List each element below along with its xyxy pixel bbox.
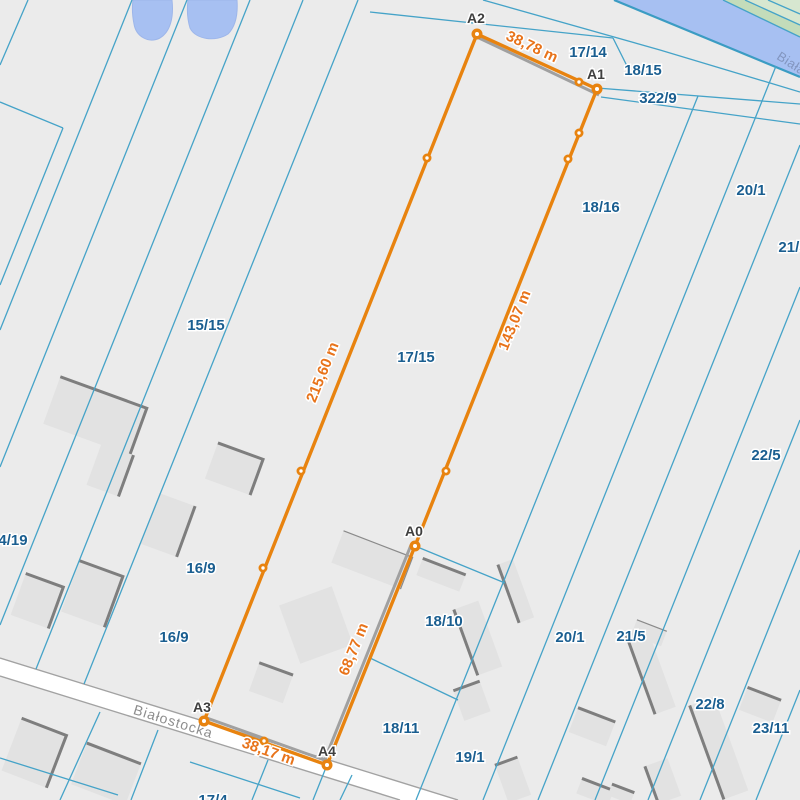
parcel-label-18-15: 18/15 — [624, 62, 662, 79]
vertex-label-a0: A0 — [405, 523, 423, 539]
parcel-label-19-1: 19/1 — [455, 749, 484, 766]
vertex-marker-A0[interactable] — [410, 541, 421, 552]
vertex-label-a1: A1 — [587, 66, 605, 82]
parcel-label-21-5: 21/5 — [778, 239, 800, 256]
parcel-label-18-11: 18/11 — [383, 720, 420, 737]
parcel-label-22-5: 22/5 — [751, 447, 780, 464]
parcel-label-15-15: 15/15 — [187, 317, 225, 334]
parcel-label-322-9: 322/9 — [639, 90, 677, 107]
parcel-label-20-1b: 20/1 — [555, 629, 584, 646]
parcel-label-23-11: 23/11 — [753, 720, 790, 737]
vertex-marker-A3[interactable] — [199, 716, 210, 727]
parcel-label-18-10: 18/10 — [425, 613, 463, 630]
parcel-label-18-16: 18/16 — [582, 199, 620, 216]
vertex-marker-A2[interactable] — [472, 29, 483, 40]
parcel-label-17-15: 17/15 — [397, 349, 435, 366]
parcel-label-16-9a: 16/9 — [186, 560, 215, 577]
parcel-label-20-1: 20/1 — [736, 182, 765, 199]
vertex-label-a2: A2 — [467, 10, 485, 26]
vertex-marker-A1[interactable] — [592, 84, 603, 95]
parcel-label-16-9b: 16/9 — [159, 629, 188, 646]
cadastral-map-canvas[interactable]: Białostocka Biała A0 A1 A2 — [0, 0, 800, 800]
map-viewport[interactable]: Białostocka Biała A0 A1 A2 — [0, 0, 800, 800]
parcel-label-22-8: 22/8 — [695, 696, 724, 713]
parcel-label-21-5b: 21/5 — [616, 628, 645, 645]
parcel-label-17-4: 17/4 — [198, 792, 228, 800]
vertex-marker-A4[interactable] — [322, 760, 333, 771]
vertex-label-a4: A4 — [318, 743, 336, 759]
parcel-label-17-14: 17/14 — [569, 44, 607, 61]
parcel-label-4-19: 4/19 — [0, 532, 28, 549]
vertex-label-a3: A3 — [193, 699, 211, 715]
